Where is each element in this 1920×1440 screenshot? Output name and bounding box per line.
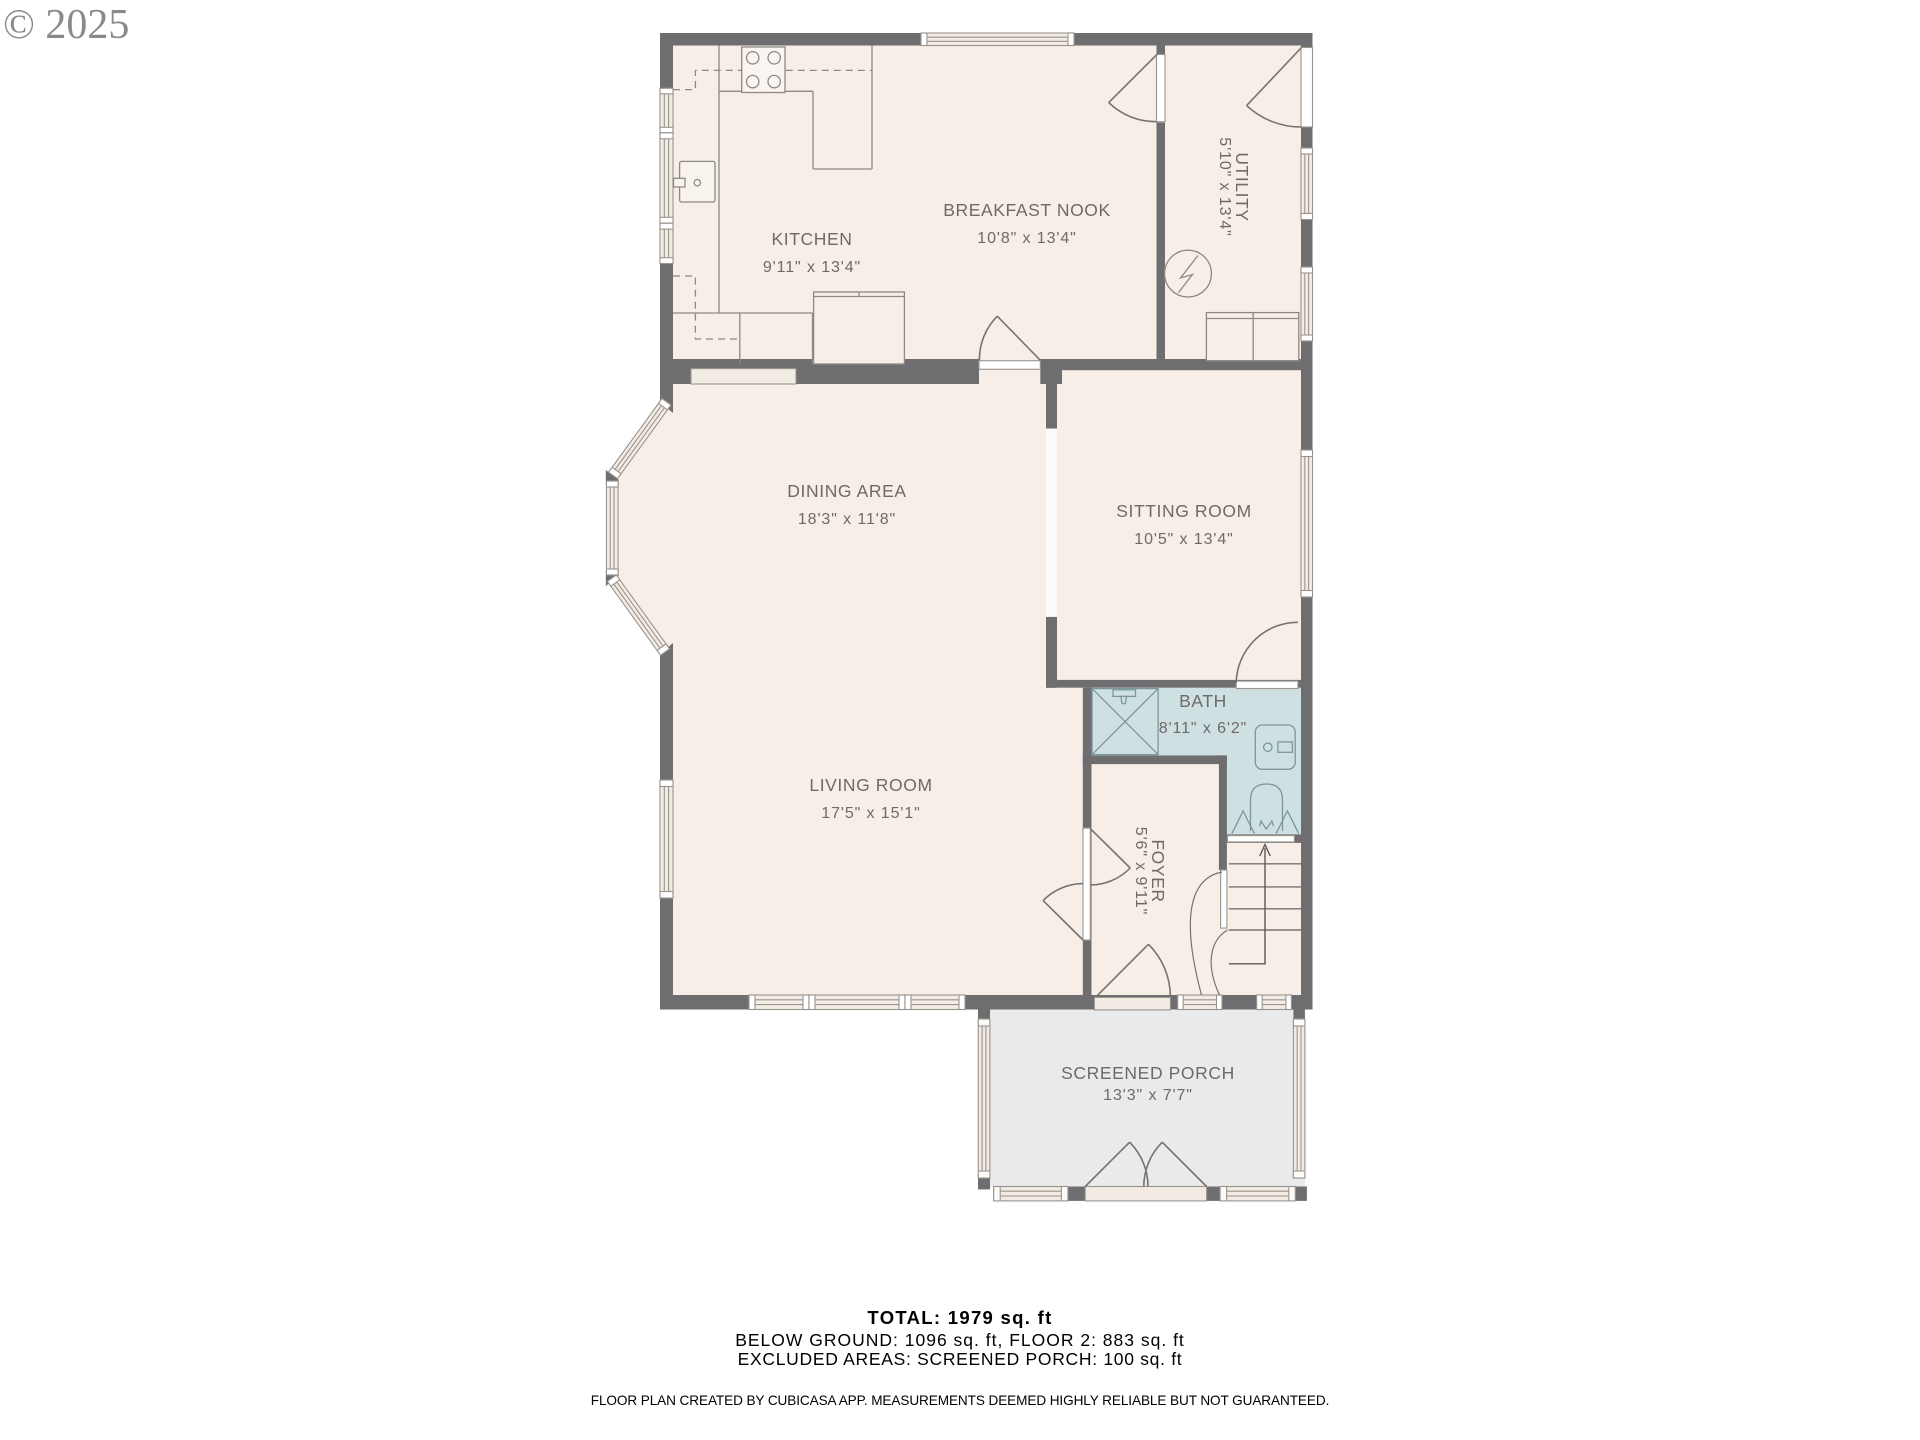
svg-text:10'8" x 13'4": 10'8" x 13'4" [977,230,1076,247]
svg-text:BREAKFAST NOOK: BREAKFAST NOOK [943,200,1111,220]
svg-text:FOYER: FOYER [1148,839,1168,902]
svg-text:TOTAL: 1979 sq. ft: TOTAL: 1979 sq. ft [867,1307,1052,1328]
svg-text:10'5" x 13'4": 10'5" x 13'4" [1134,531,1233,548]
svg-text:SCREENED PORCH: SCREENED PORCH [1061,1063,1235,1083]
svg-text:17'5" x 15'1": 17'5" x 15'1" [821,805,920,822]
svg-text:DINING AREA: DINING AREA [787,481,906,501]
svg-text:© 2025: © 2025 [3,2,129,48]
svg-text:UTILITY: UTILITY [1232,152,1252,221]
svg-text:BELOW GROUND: 1096 sq. ft, FLO: BELOW GROUND: 1096 sq. ft, FLOOR 2: 883 … [735,1330,1185,1350]
svg-text:5'6" x 9'11": 5'6" x 9'11" [1132,827,1149,915]
svg-text:KITCHEN: KITCHEN [771,229,852,249]
svg-text:EXCLUDED AREAS: SCREENED PORCH: EXCLUDED AREAS: SCREENED PORCH: 100 sq. … [738,1349,1183,1369]
svg-text:LIVING ROOM: LIVING ROOM [809,775,932,795]
svg-text:5'10" x 13'4": 5'10" x 13'4" [1216,137,1233,236]
svg-text:9'11" x 13'4": 9'11" x 13'4" [763,259,861,276]
svg-text:SITTING ROOM: SITTING ROOM [1116,501,1252,521]
svg-text:FLOOR PLAN CREATED BY CUBICASA: FLOOR PLAN CREATED BY CUBICASA APP. MEAS… [591,1393,1330,1408]
svg-text:BATH: BATH [1179,691,1227,711]
svg-text:8'11" x 6'2": 8'11" x 6'2" [1159,720,1247,737]
svg-text:18'3" x 11'8": 18'3" x 11'8" [798,511,896,528]
svg-text:13'3" x 7'7": 13'3" x 7'7" [1103,1087,1193,1104]
